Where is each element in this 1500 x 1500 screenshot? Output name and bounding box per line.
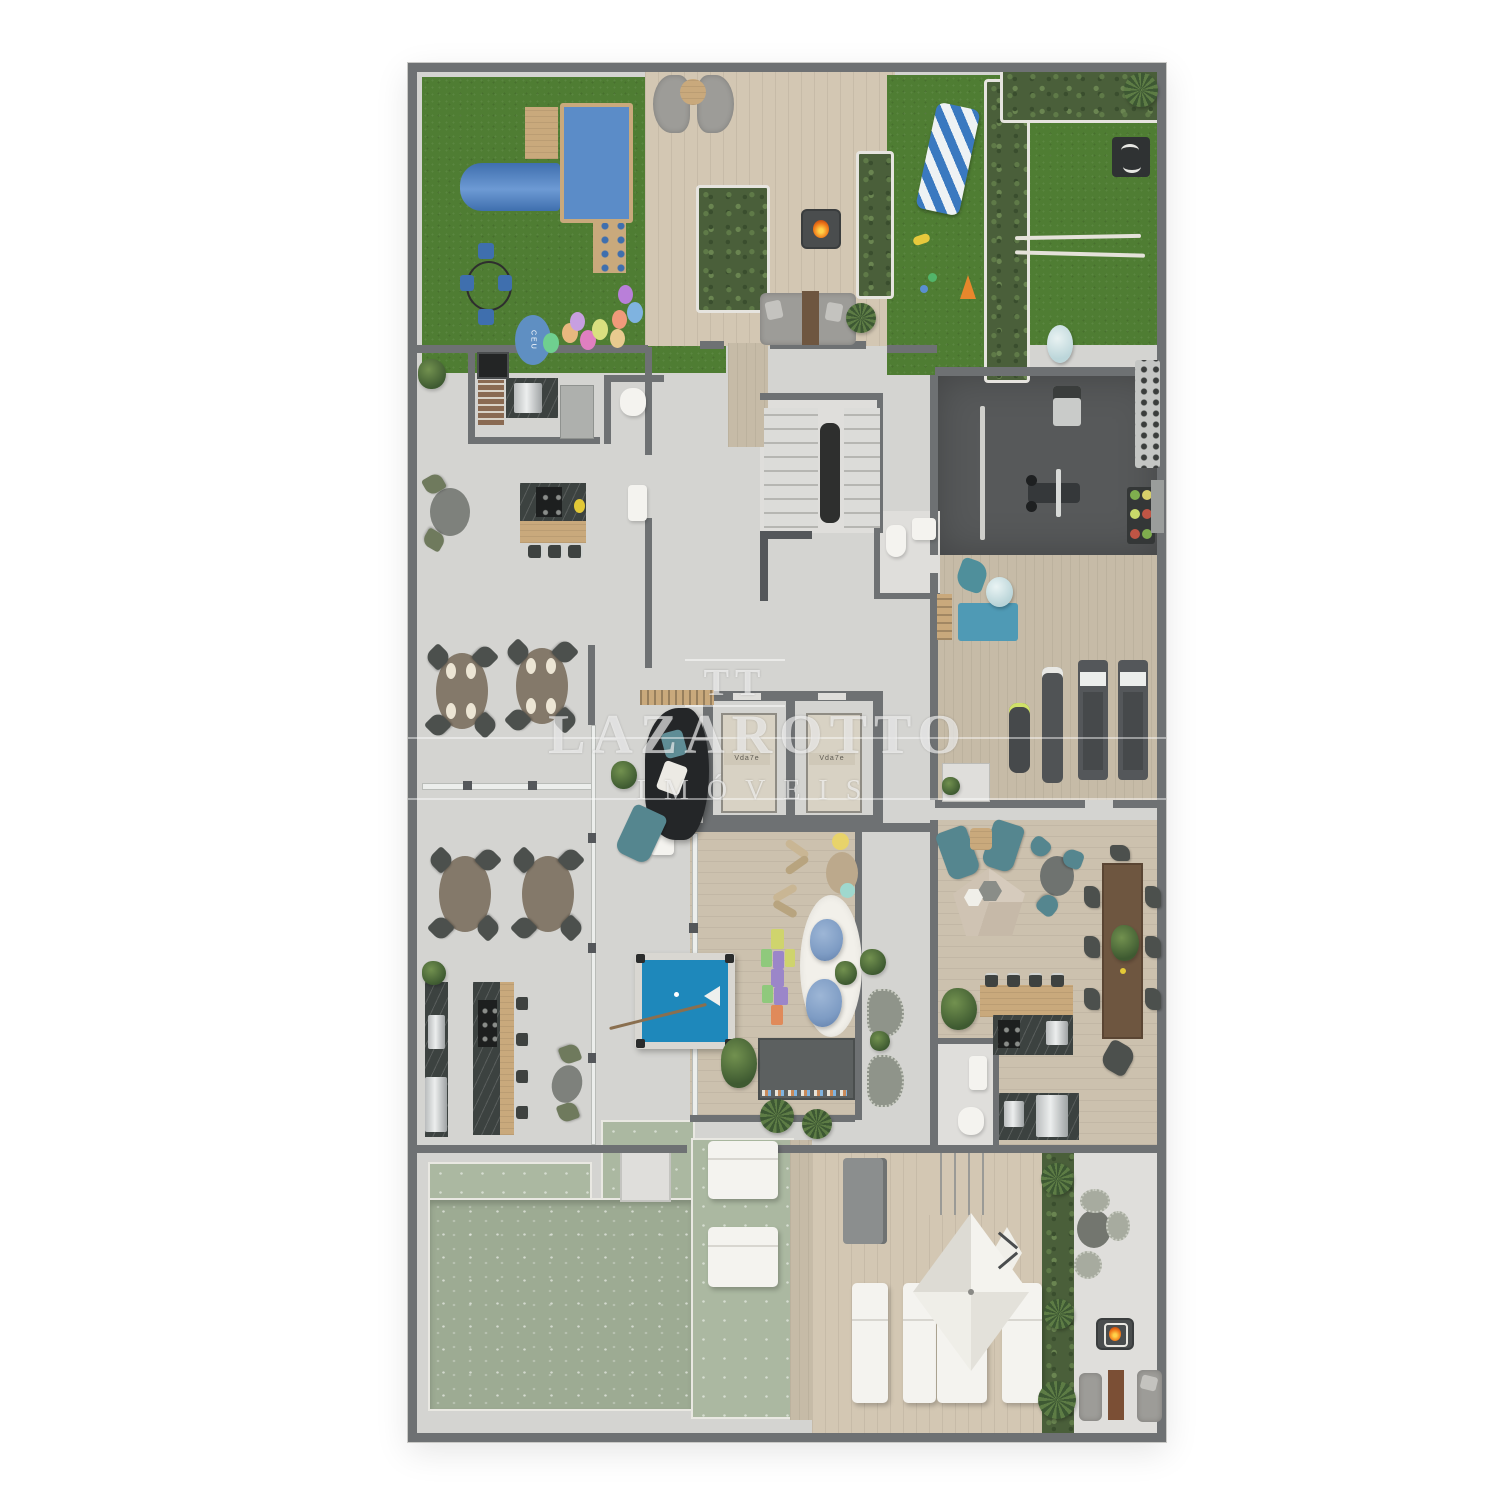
elevator-cab-label: Vda7e xyxy=(809,753,855,765)
hedge-divider xyxy=(984,79,1030,383)
stepping-stone xyxy=(612,310,627,329)
wall xyxy=(408,1433,1166,1442)
place-setting xyxy=(466,663,476,679)
squat-rack xyxy=(1053,386,1081,426)
palm-plant xyxy=(1124,73,1158,107)
pool-side-deck xyxy=(790,1140,812,1420)
kids-pouf xyxy=(840,883,855,898)
stepping-stone xyxy=(610,329,625,348)
wall xyxy=(408,63,1166,72)
pet-seesaw-pivot xyxy=(1112,137,1150,177)
stepping-stone xyxy=(592,319,608,340)
bar-stool xyxy=(1051,973,1064,987)
cue-ball xyxy=(674,992,679,997)
wall xyxy=(935,367,1166,376)
treadmill xyxy=(1118,660,1148,780)
in-pool-lounger xyxy=(708,1141,778,1199)
wood-coffee-table xyxy=(1108,1370,1124,1420)
wall xyxy=(604,375,664,382)
side-table xyxy=(970,828,992,850)
slide xyxy=(460,163,560,211)
flame-icon xyxy=(813,220,829,238)
toilet xyxy=(958,1107,984,1135)
cafe-table xyxy=(548,1062,587,1106)
wall xyxy=(468,347,475,443)
bar-stool xyxy=(985,973,998,987)
in-pool-lounger xyxy=(708,1227,778,1287)
hopscotch-tile xyxy=(785,949,795,967)
palm-plant xyxy=(1044,1299,1074,1329)
bar-island-wood xyxy=(500,982,514,1135)
rattan-chair xyxy=(867,989,904,1037)
wall xyxy=(887,345,937,353)
elevator-door xyxy=(818,693,846,700)
built-in-grill xyxy=(1036,1095,1068,1137)
kitchen-sink xyxy=(1046,1021,1068,1045)
treadmill-belt xyxy=(1083,692,1103,770)
stepping-stone xyxy=(543,333,559,353)
gym-ball xyxy=(1130,529,1140,539)
place-setting xyxy=(466,703,476,719)
page: CEU xyxy=(0,0,1500,1500)
wall xyxy=(604,375,611,444)
wall xyxy=(700,341,724,349)
place-setting xyxy=(526,658,536,674)
outdoor-shower xyxy=(843,1158,887,1244)
pocket xyxy=(725,954,734,963)
wall xyxy=(408,63,417,1442)
hopscotch-tile xyxy=(771,929,784,949)
palm-plant xyxy=(1038,1381,1076,1419)
island-cooktop xyxy=(478,1000,497,1047)
hopscotch-tile xyxy=(773,951,784,969)
wall xyxy=(1157,63,1166,1442)
chair xyxy=(558,1042,583,1066)
chair xyxy=(1110,845,1130,861)
deck-planter xyxy=(856,151,894,299)
glass-partition xyxy=(422,783,592,790)
sofa-pillow xyxy=(764,300,783,321)
horse-body xyxy=(772,899,799,919)
play-steps xyxy=(593,215,626,273)
dining-set xyxy=(430,645,493,737)
sofa-pillow xyxy=(825,302,844,323)
pivot-mark xyxy=(1121,144,1139,157)
column xyxy=(689,923,698,933)
column xyxy=(588,943,596,953)
exercise-machine xyxy=(1042,667,1063,783)
bar-stool xyxy=(516,1033,530,1046)
fridge xyxy=(628,485,647,521)
plant xyxy=(942,777,960,795)
deck-stairs xyxy=(928,1153,990,1215)
hopscotch-tile xyxy=(774,987,788,1005)
kids-pouf xyxy=(832,833,849,850)
hopscotch-tile xyxy=(771,1005,783,1025)
place-setting xyxy=(526,698,536,714)
wall xyxy=(880,593,940,599)
plant xyxy=(870,1031,890,1051)
bar-stool xyxy=(528,545,543,558)
wall xyxy=(645,347,652,455)
bar-sink xyxy=(428,1015,445,1049)
wall xyxy=(930,820,938,1145)
floor-plan: CEU xyxy=(408,63,1166,1442)
palm-plant xyxy=(802,1109,832,1139)
fire-pit xyxy=(1098,1320,1132,1348)
wall xyxy=(645,518,652,668)
plant xyxy=(835,961,857,985)
wicker-chair xyxy=(1106,1211,1130,1241)
chair xyxy=(1084,988,1100,1010)
hopscotch-tile xyxy=(761,949,772,967)
play-tower-roof xyxy=(560,103,633,223)
sink xyxy=(912,518,936,540)
plant xyxy=(611,761,637,789)
stair-flight xyxy=(764,408,818,528)
bistro-table xyxy=(430,488,470,536)
exercise-ball xyxy=(986,577,1013,607)
place-setting xyxy=(546,698,556,714)
pet-pool xyxy=(1047,325,1073,363)
bar-stool xyxy=(516,1106,530,1119)
decor-dot xyxy=(1120,968,1126,974)
palm-plant xyxy=(760,1099,794,1133)
bar-stool xyxy=(516,1070,530,1083)
wicker-chair xyxy=(1074,1251,1102,1279)
toilet xyxy=(886,525,906,557)
bar-fridge xyxy=(425,1077,447,1132)
deck-planter xyxy=(696,185,770,313)
dining-set xyxy=(516,848,579,940)
elevator-cab-label: Vda7e xyxy=(724,753,770,765)
stepping-stone xyxy=(618,285,633,304)
dining-set xyxy=(510,640,573,732)
cooktop xyxy=(998,1020,1020,1048)
bar-stool xyxy=(548,545,563,558)
weight-bench xyxy=(1028,483,1080,503)
merry-go-round-seat xyxy=(478,243,494,259)
fire-pit xyxy=(803,211,839,247)
palm-plant xyxy=(1041,1163,1073,1195)
pivot-mark xyxy=(1123,160,1141,173)
pool-main xyxy=(428,1198,695,1411)
bar-stool xyxy=(1029,973,1042,987)
ball-toy xyxy=(928,273,937,282)
plant xyxy=(422,961,446,985)
sun-lounger xyxy=(852,1283,888,1403)
yoga-mat xyxy=(958,603,1018,641)
deck-side-table xyxy=(680,79,706,105)
stepping-stone xyxy=(627,302,643,323)
chair xyxy=(1084,936,1100,958)
basin xyxy=(969,1056,987,1090)
barbell xyxy=(1056,469,1061,517)
wall xyxy=(938,1038,993,1044)
pool-step-platform xyxy=(620,1151,671,1202)
sofa-console xyxy=(802,291,819,345)
treadmill-console xyxy=(1120,672,1146,686)
cooktop xyxy=(536,487,562,517)
toilet xyxy=(620,388,646,416)
merry-go-round-seat xyxy=(478,309,494,325)
stair-void xyxy=(820,423,840,523)
chair xyxy=(1145,988,1161,1010)
column xyxy=(588,833,596,843)
wall xyxy=(930,1145,1166,1153)
column xyxy=(528,781,537,790)
ladder-barrel xyxy=(937,594,952,640)
column xyxy=(588,1053,596,1063)
rocking-horse xyxy=(768,885,802,919)
column xyxy=(463,781,472,790)
barbell-rack xyxy=(980,406,985,540)
rocking-horse xyxy=(780,841,814,875)
horse-body xyxy=(784,854,810,875)
gym-ball xyxy=(1130,509,1140,519)
umbrella-finial xyxy=(968,1289,974,1295)
weight-plate xyxy=(1026,475,1037,486)
stair-flight xyxy=(844,408,880,528)
rattan-chair xyxy=(867,1055,904,1107)
stepping-stone xyxy=(570,312,585,331)
bar-stool xyxy=(568,545,583,558)
table-centerpiece-plant xyxy=(1111,925,1139,961)
merry-go-round-seat xyxy=(460,275,474,291)
toy-shelf xyxy=(758,1038,855,1100)
plant xyxy=(860,949,886,975)
outdoor-sofa xyxy=(1079,1373,1102,1421)
wall xyxy=(760,393,883,400)
ball-toy xyxy=(920,285,928,293)
toy-row xyxy=(762,1090,847,1096)
pool-table xyxy=(635,953,735,1049)
plant xyxy=(721,1038,757,1088)
elevator-core-wall xyxy=(873,691,883,825)
treadmill xyxy=(1078,660,1108,780)
slat-bench xyxy=(640,690,714,705)
pocket xyxy=(636,1039,645,1048)
plant xyxy=(941,988,977,1030)
elliptical xyxy=(1009,703,1030,773)
chair xyxy=(556,1100,581,1124)
wall xyxy=(588,645,595,725)
place-setting xyxy=(446,663,456,679)
wall xyxy=(1113,800,1160,808)
pocket xyxy=(636,954,645,963)
wall xyxy=(417,1145,687,1153)
hopscotch-sky-label: CEU xyxy=(530,330,537,351)
merry-go-round xyxy=(460,243,512,331)
chair xyxy=(1145,936,1161,958)
wicker-chair xyxy=(1080,1189,1110,1213)
island-counter xyxy=(520,521,586,543)
chair xyxy=(1084,886,1100,908)
palm-plant xyxy=(846,303,876,333)
bbq-sink xyxy=(514,383,542,413)
dining-set xyxy=(433,848,496,940)
brick-counter xyxy=(478,380,504,425)
hopscotch-tile xyxy=(771,969,784,987)
merry-go-round-seat xyxy=(498,275,512,291)
wall-rack xyxy=(1151,480,1164,533)
treadmill-console xyxy=(1080,672,1106,686)
hopscotch-tile xyxy=(762,985,773,1003)
treadmill-belt xyxy=(1123,692,1143,770)
kitchen-counter xyxy=(980,985,1073,1017)
bar-stool xyxy=(1007,973,1020,987)
counter-sink xyxy=(1004,1101,1024,1127)
elevator-door xyxy=(733,693,761,700)
elevator-core-wall xyxy=(786,691,795,825)
grill xyxy=(477,352,509,379)
dumbbell-rack xyxy=(1135,360,1160,468)
plant xyxy=(418,359,446,389)
decor-bowl xyxy=(574,499,585,513)
flame-icon xyxy=(1109,1327,1121,1341)
gym-ball xyxy=(1130,490,1140,500)
climbing-ladder xyxy=(525,107,558,159)
chair xyxy=(1145,886,1161,908)
stair-landing xyxy=(760,531,768,601)
place-setting xyxy=(546,658,556,674)
cabinet xyxy=(560,385,594,439)
bar-stool xyxy=(516,997,530,1010)
weight-plate xyxy=(1026,501,1037,512)
place-setting xyxy=(446,703,456,719)
